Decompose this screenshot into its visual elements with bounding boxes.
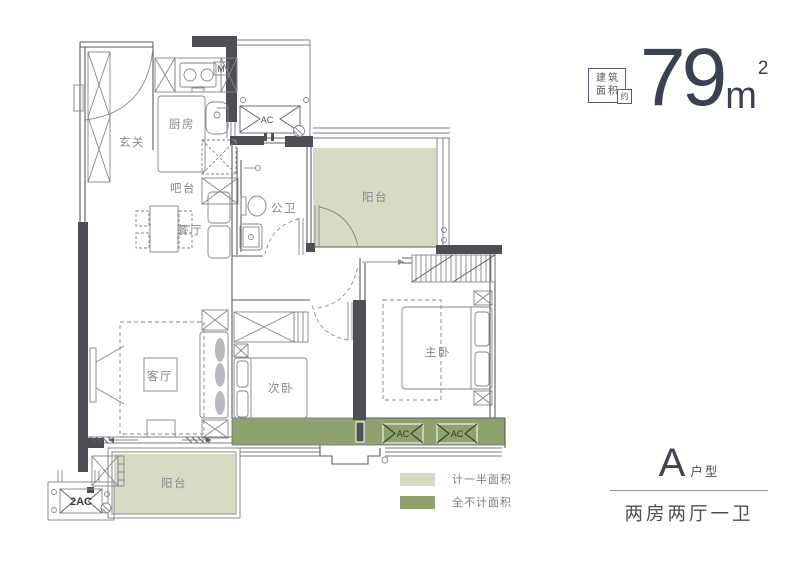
building-area-badge: 建筑 面积 约: [588, 68, 626, 103]
label-ac-master-left: AC: [397, 429, 410, 439]
master-door-arc: [318, 266, 358, 308]
unit-type-suffix: 户型: [690, 461, 719, 480]
divider-line: [610, 490, 768, 491]
unit-layout-description: 两房两厅一卫: [610, 500, 768, 526]
label-bar: 吧台: [170, 181, 196, 195]
label-ac-master-right: AC: [451, 429, 464, 439]
entrance-door-arc: [85, 47, 153, 120]
unit-type-letter: A: [659, 443, 686, 483]
legend-item-half-area: 计一半面积: [400, 471, 512, 487]
area-fills: [114, 148, 505, 514]
area-unit-letter: m: [725, 75, 757, 117]
label-bedroom-master: 主卧: [425, 346, 451, 359]
label-dining: 餐厅: [177, 223, 203, 237]
bathroom-door-arc: [265, 219, 299, 254]
excluded-strip-area: [232, 418, 505, 445]
legend-swatch-half-area: [400, 473, 435, 486]
bedroom2-door-arc: [312, 303, 348, 340]
legend-item-excluded-area: 全不计面积: [400, 494, 512, 510]
legend-label-excluded-area: 全不计面积: [452, 494, 512, 510]
legend: 计一半面积 全不计面积: [400, 471, 512, 517]
legend-swatch-excluded-area: [400, 496, 435, 509]
badge-line1: 建筑: [594, 73, 620, 86]
area-unit-superscript: 2: [758, 58, 769, 79]
unit-type-block: A 户型 两房两厅一卫: [610, 443, 768, 526]
label-ac-top: AC: [261, 115, 274, 125]
area-value: 79: [640, 44, 723, 111]
area-header: 建筑 面积 约 79 m2: [588, 44, 767, 111]
label-living: 客厅: [147, 369, 173, 383]
label-bedroom-second: 次卧: [268, 381, 294, 395]
approx-badge: 约: [617, 89, 632, 104]
label-balcony-top: 阳台: [362, 190, 388, 204]
label-ac-outdoor: 2AC: [70, 496, 92, 508]
unit-type-title: A 户型: [610, 443, 768, 483]
label-gas-meter: M: [217, 64, 225, 74]
label-bathroom: 公卫: [271, 202, 297, 215]
label-balcony-bottom: 阳台: [161, 476, 187, 490]
floorplan-page: 玄关 厨房 吧台 餐厅 公卫 阳台 客厅 次卧 主卧 阳台 M AC AC AC…: [0, 0, 800, 565]
legend-label-half-area: 计一半面积: [452, 471, 512, 487]
label-kitchen: 厨房: [169, 118, 195, 131]
area-unit: m2: [725, 81, 767, 111]
label-entrance: 玄关: [119, 135, 145, 149]
